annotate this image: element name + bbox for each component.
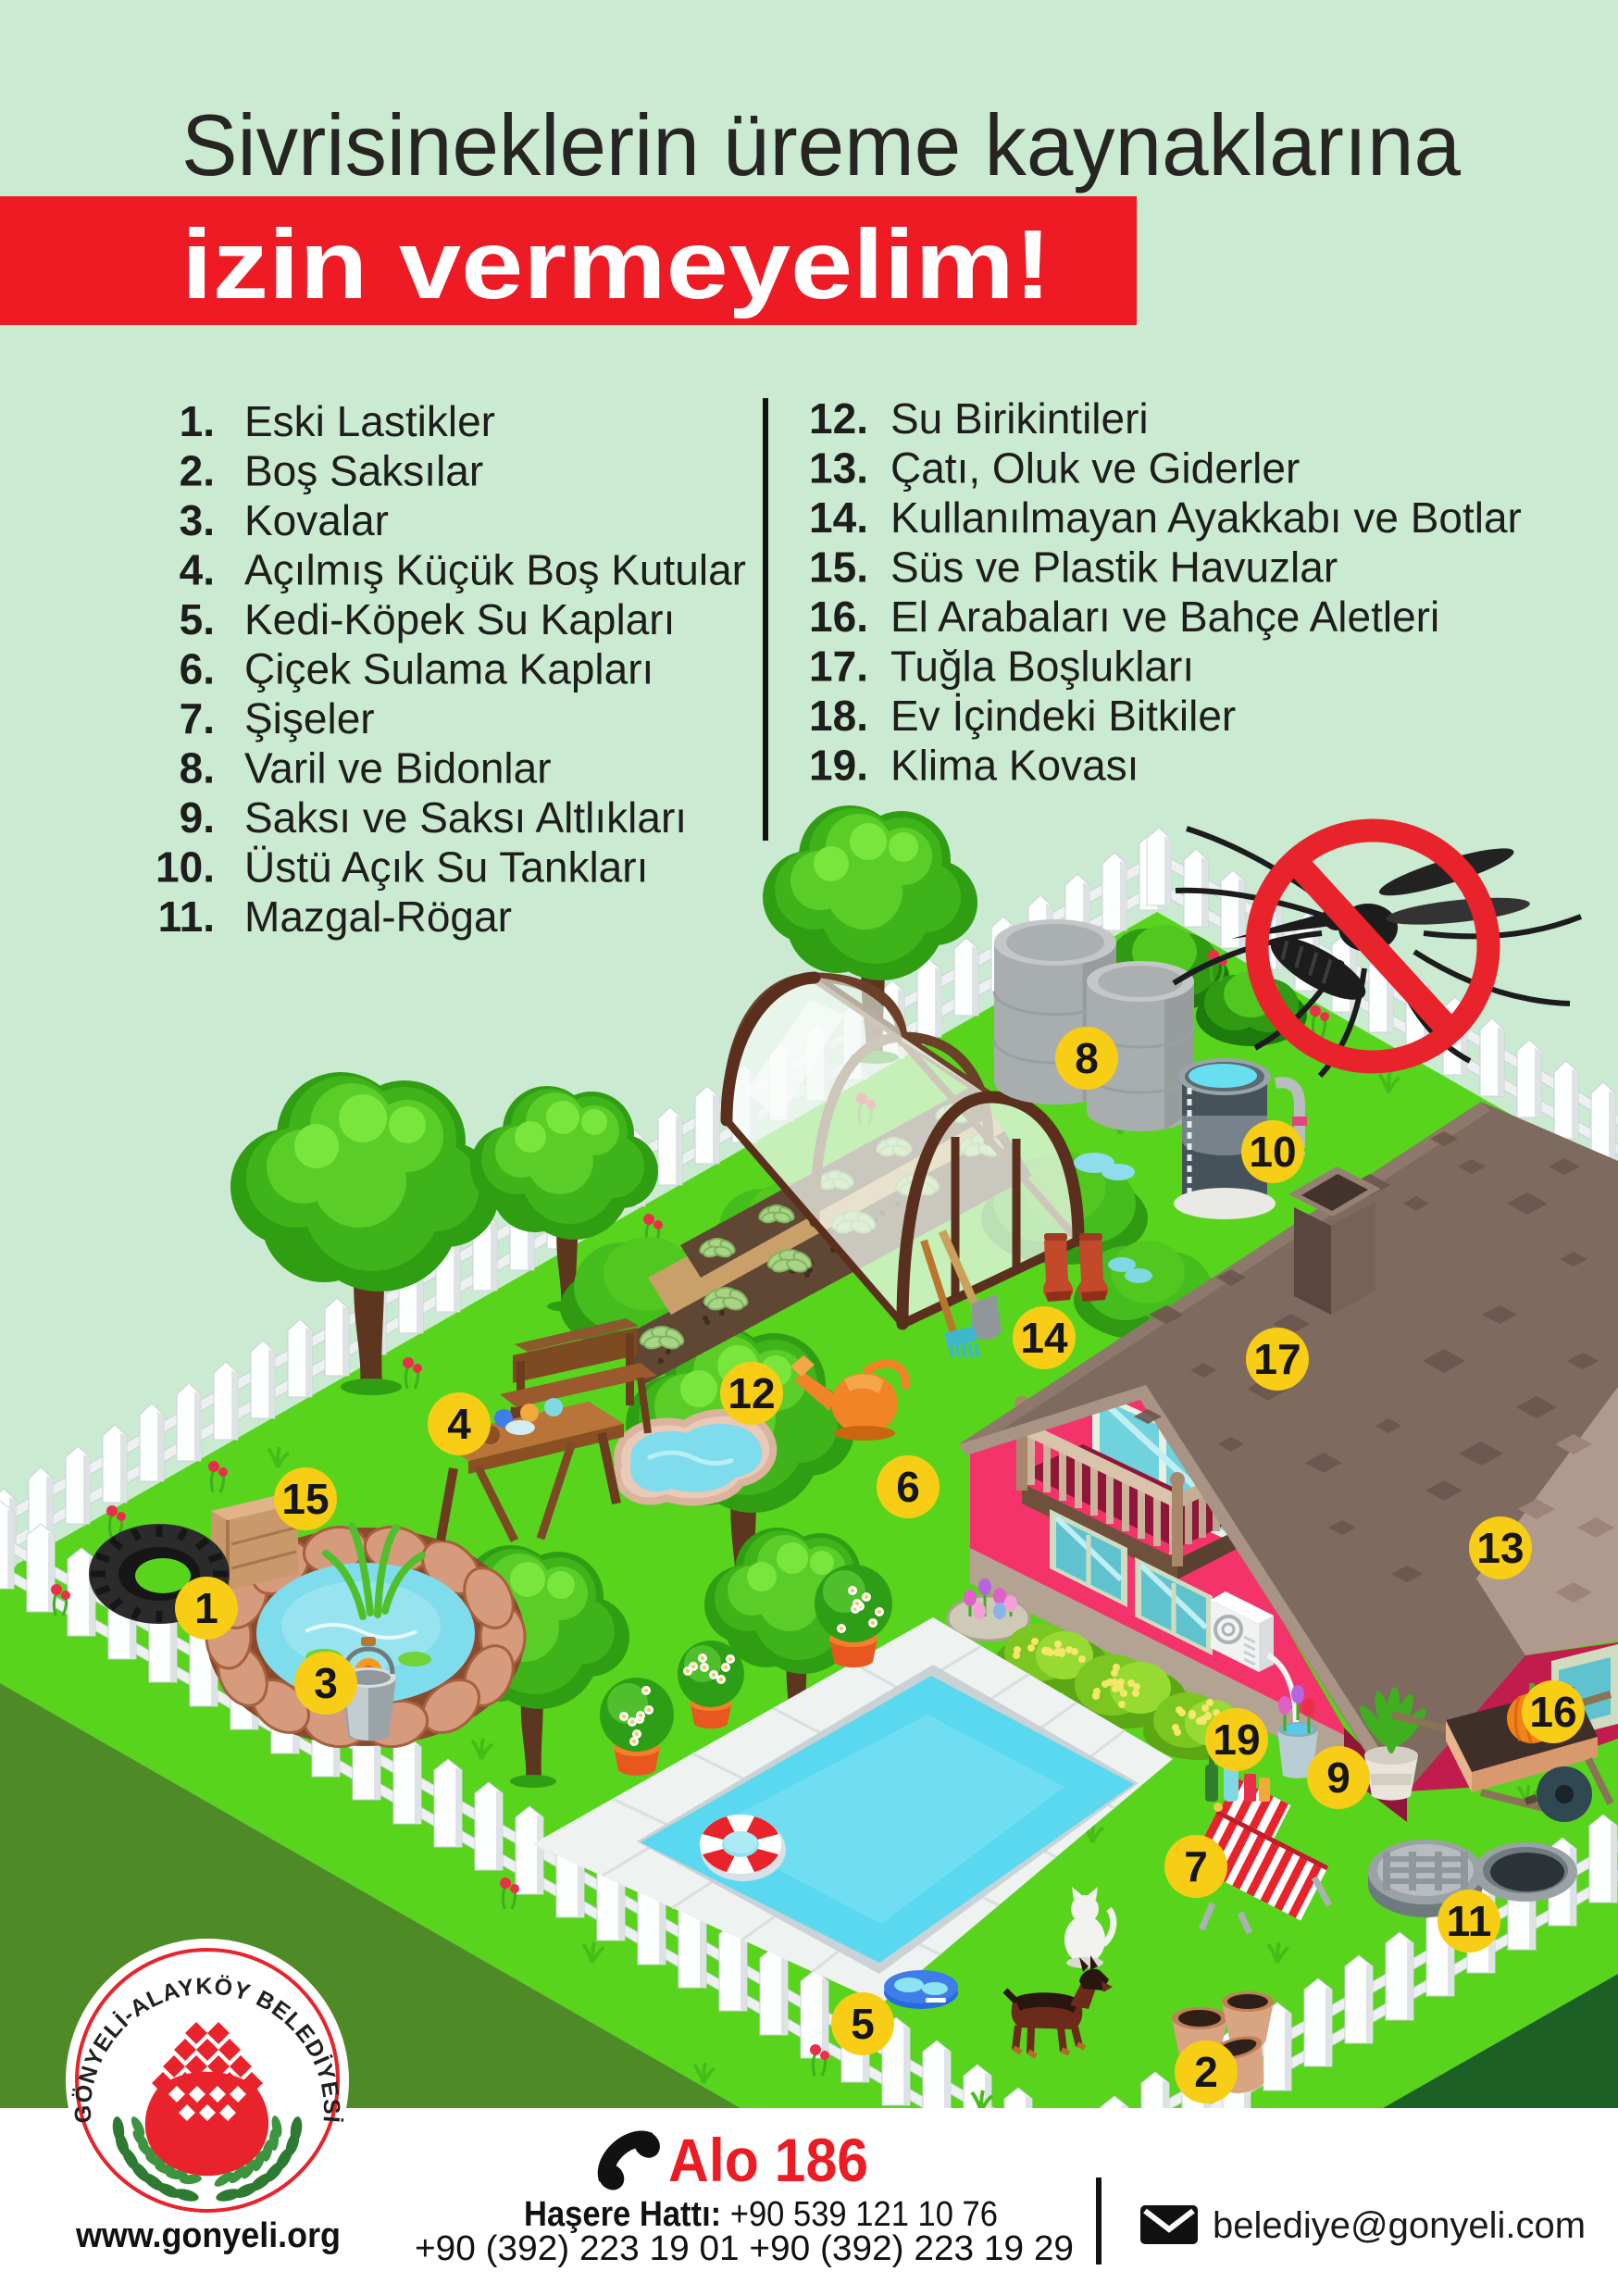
svg-text:8.: 8. [180, 744, 215, 792]
svg-text:11: 11 [1447, 1897, 1492, 1945]
svg-text:Alo 186: Alo 186 [668, 2126, 868, 2194]
svg-text:12.: 12. [809, 394, 868, 443]
svg-text:Kovalar: Kovalar [244, 496, 389, 544]
svg-text:Eski Lastikler: Eski Lastikler [244, 397, 495, 445]
svg-text:www.gonyeli.org: www.gonyeli.org [75, 2216, 341, 2255]
svg-text:10: 10 [1249, 1128, 1296, 1176]
svg-text:1.: 1. [180, 397, 215, 445]
svg-text:5: 5 [851, 2000, 875, 2048]
svg-text:Varil ve Bidonlar: Varil ve Bidonlar [244, 744, 552, 792]
svg-text:Kedi-Köpek Su Kapları: Kedi-Köpek Su Kapları [244, 595, 675, 643]
svg-text:Haşere Hattı: +90 539 121 10 7: Haşere Hattı: +90 539 121 10 76 [524, 2195, 998, 2234]
svg-text:8: 8 [1075, 1034, 1099, 1082]
svg-text:4: 4 [447, 1400, 471, 1448]
svg-text:12: 12 [728, 1369, 775, 1417]
svg-text:5.: 5. [180, 595, 215, 643]
svg-text:Su Birikintileri: Su Birikintileri [890, 394, 1149, 443]
svg-text:15.: 15. [809, 543, 868, 592]
svg-text:7: 7 [1184, 1842, 1208, 1890]
svg-text:Üstü Açık Su Tankları: Üstü Açık Su Tankları [244, 843, 648, 892]
svg-text:Sivrisineklerin üreme kaynakla: Sivrisineklerin üreme kaynaklarına [181, 96, 1462, 193]
svg-text:9: 9 [1326, 1753, 1350, 1802]
svg-text:Tuğla Boşlukları: Tuğla Boşlukları [890, 643, 1194, 691]
svg-text:+90 (392) 223 19 01 +90 (392): +90 (392) 223 19 01 +90 (392) 223 19 29 [415, 2229, 1074, 2268]
svg-text:11.: 11. [158, 892, 215, 941]
svg-text:13.: 13. [809, 444, 868, 493]
svg-text:6: 6 [896, 1463, 920, 1511]
svg-text:1: 1 [194, 1584, 218, 1632]
svg-text:16: 16 [1529, 1688, 1576, 1736]
svg-text:18.: 18. [809, 692, 868, 740]
svg-text:17.: 17. [809, 643, 868, 691]
svg-text:Çatı, Oluk ve Giderler: Çatı, Oluk ve Giderler [890, 444, 1300, 493]
svg-text:Açılmış Küçük Boş Kutular: Açılmış Küçük Boş Kutular [244, 546, 746, 594]
svg-text:Süs ve Plastik Havuzlar: Süs ve Plastik Havuzlar [890, 543, 1338, 592]
svg-text:19: 19 [1213, 1716, 1260, 1764]
svg-text:3: 3 [314, 1659, 338, 1707]
svg-text:4.: 4. [180, 546, 215, 594]
svg-text:9.: 9. [180, 793, 215, 842]
svg-text:13: 13 [1476, 1524, 1524, 1572]
svg-text:15: 15 [281, 1475, 329, 1523]
svg-text:El Arabaları ve Bahçe Aletleri: El Arabaları ve Bahçe Aletleri [890, 593, 1439, 641]
svg-text:Mazgal-Rögar: Mazgal-Rögar [244, 892, 512, 941]
svg-text:14: 14 [1020, 1314, 1068, 1362]
svg-text:Boş Saksılar: Boş Saksılar [244, 447, 483, 495]
svg-text:Saksı ve Saksı Altlıkları: Saksı ve Saksı Altlıkları [244, 793, 687, 842]
svg-text:14.: 14. [809, 493, 868, 542]
svg-text:17: 17 [1253, 1335, 1301, 1383]
svg-text:16.: 16. [809, 593, 868, 641]
svg-text:7.: 7. [180, 694, 215, 742]
svg-text:izin vermeyelim!: izin vermeyelim! [181, 210, 1052, 319]
svg-text:3.: 3. [180, 496, 215, 544]
svg-text:Çiçek Sulama Kapları: Çiçek Sulama Kapları [244, 645, 653, 693]
svg-text:2.: 2. [180, 447, 215, 495]
svg-text:19.: 19. [809, 742, 868, 790]
svg-text:belediye@gonyeli.com: belediye@gonyeli.com [1213, 2205, 1586, 2246]
svg-text:Ev İçindeki Bitkiler: Ev İçindeki Bitkiler [890, 692, 1236, 740]
svg-text:2: 2 [1194, 2048, 1218, 2096]
svg-text:Kullanılmayan Ayakkabı ve Botl: Kullanılmayan Ayakkabı ve Botlar [890, 493, 1522, 542]
svg-text:10.: 10. [156, 843, 215, 892]
svg-text:6.: 6. [180, 645, 215, 693]
svg-text:Klima Kovası: Klima Kovası [890, 742, 1139, 790]
svg-text:Şişeler: Şişeler [244, 694, 375, 742]
